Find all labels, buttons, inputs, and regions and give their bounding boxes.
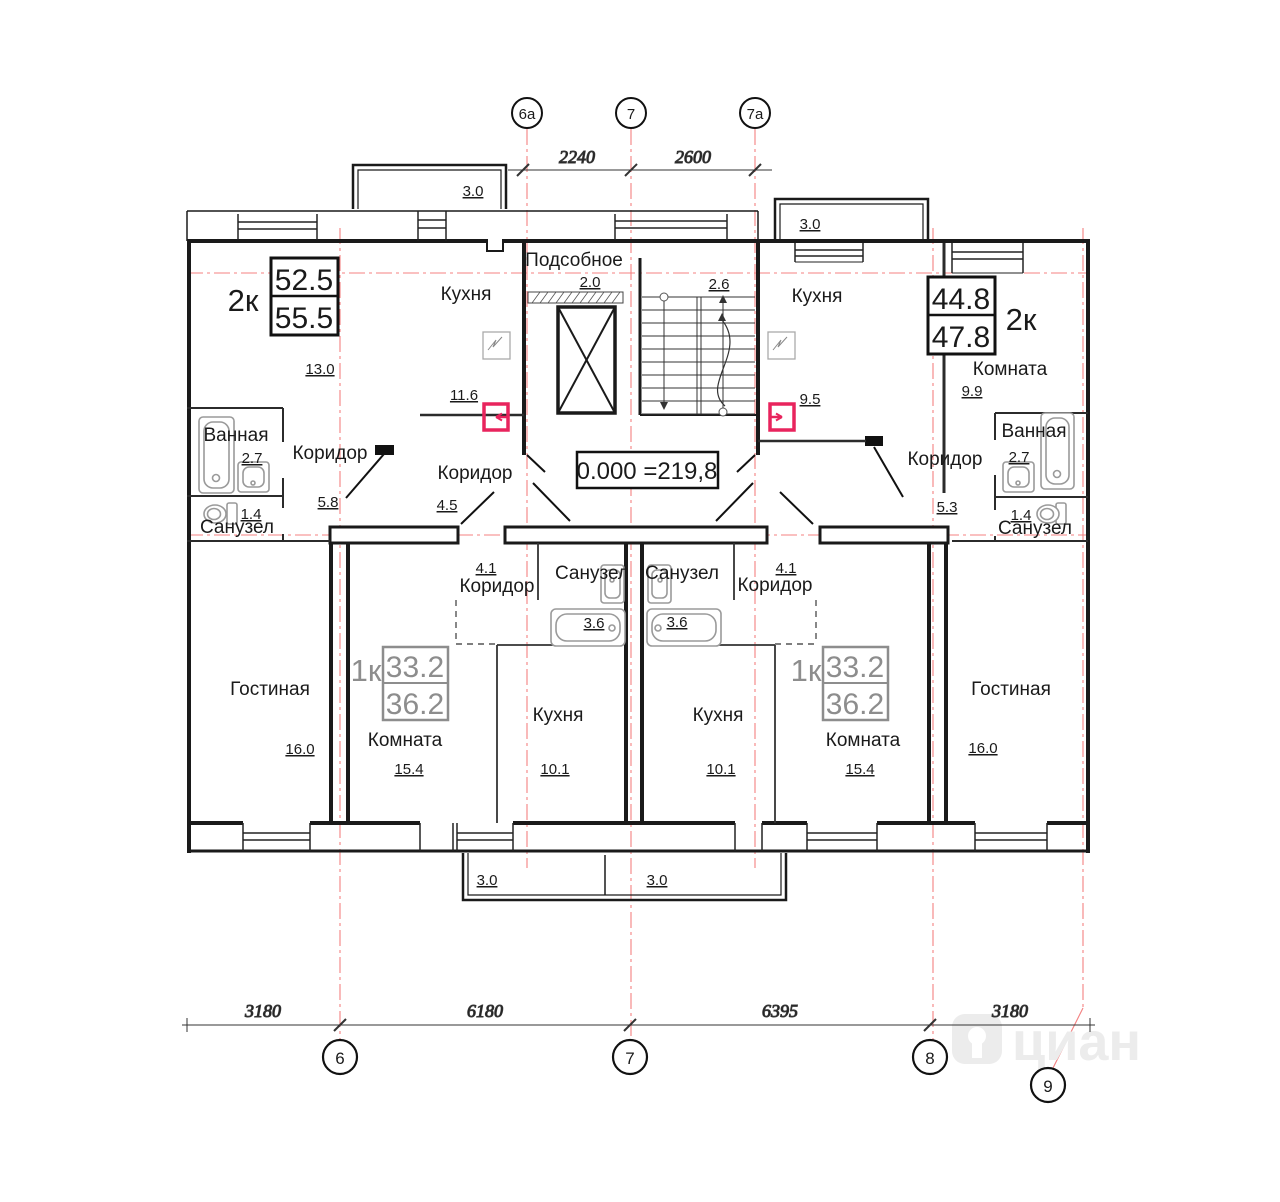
window-bottom-living-right <box>975 823 1047 851</box>
area-living-r2k: 16.0 <box>968 740 997 757</box>
label-kitchen-r1k: Кухня <box>693 705 744 726</box>
area-room-r1k: 15.4 <box>845 761 874 778</box>
wall-slab-left <box>330 527 458 543</box>
apt-area1-left2k: 52.5 <box>275 264 333 297</box>
label-kitchen-r2k: Кухня <box>792 286 843 307</box>
staircase <box>640 258 758 416</box>
dim-bottom-2: 6180 <box>467 1001 503 1021</box>
apt-area2-right1k: 36.2 <box>826 688 884 721</box>
door-stub-hall-right <box>866 437 882 445</box>
label-kitchen-l2k: Кухня <box>441 284 492 305</box>
apartment-card-right1k: 1к 33.2 36.2 <box>791 647 888 721</box>
watermark-text: циан <box>1012 1012 1141 1072</box>
apartment-card-right2k: 2к 44.8 47.8 <box>928 277 1037 354</box>
label-room-l1k: Комната <box>368 730 443 751</box>
electric-panel-left <box>483 332 510 359</box>
floor-plan-page: циан <box>0 0 1280 1202</box>
watermark-logo-pin-tail <box>972 1040 982 1058</box>
balcony-door-right <box>735 823 762 851</box>
apt-area1-right2k: 44.8 <box>932 283 990 316</box>
electric-panel-right <box>768 332 795 359</box>
area-wc-r1k: 3.6 <box>667 614 688 631</box>
area-kitchen-l1k: 10.1 <box>540 761 569 778</box>
label-bath-l2k: Ванная <box>203 425 268 446</box>
axis-label-7: 7 <box>625 1049 634 1068</box>
entry-door-right <box>770 404 794 430</box>
axis-bubble-6a: 6а <box>512 98 542 128</box>
lobby-stub-right <box>737 455 755 472</box>
area-living-l2k: 16.0 <box>285 741 314 758</box>
elevation-value: 0.000 =219,8 <box>577 458 718 485</box>
axis-bubble-7a: 7а <box>740 98 770 128</box>
area-bath-l2k: 2.7 <box>242 450 263 467</box>
axis-label-8: 8 <box>925 1049 934 1068</box>
area-kitchen-l2k: 11.6 <box>450 387 478 404</box>
elevator-shaft <box>558 307 615 413</box>
area-hall1-l2k: 5.8 <box>318 494 339 511</box>
area-podsobnoe: 2.0 <box>580 274 601 291</box>
balcony-door-left <box>420 823 453 851</box>
area-wc-l1k: 3.6 <box>584 615 605 632</box>
apartment-card-left2k: 2к 52.5 55.5 <box>228 258 338 335</box>
area-balcony-top-right: 3.0 <box>800 216 821 233</box>
watermark: циан <box>952 1012 1141 1072</box>
window-top-bay <box>418 211 446 241</box>
area-bath-r2k: 2.7 <box>1009 449 1030 466</box>
apt-type-right2k: 2к <box>1006 302 1037 337</box>
label-wc-r1k: Санузел <box>645 563 719 584</box>
apt-area2-left1k: 36.2 <box>386 688 444 721</box>
label-hall-r2k: Коридор <box>907 449 982 470</box>
label-hall2-l2k: Коридор <box>437 463 512 484</box>
door-leaf-apt-left1k <box>461 492 494 524</box>
axis-label-9: 9 <box>1043 1077 1052 1096</box>
label-hall-l1k: Коридор <box>459 576 534 597</box>
axis-label-6: 6 <box>335 1049 344 1068</box>
window-right-kitchen <box>795 243 863 262</box>
apt-area2-left2k: 55.5 <box>275 302 333 335</box>
area-hall2-l2k: 4.5 <box>437 497 458 514</box>
door-stub-hall-left <box>376 446 393 454</box>
axis-bubble-6: 6 <box>323 1040 357 1074</box>
apt-area1-left1k: 33.2 <box>386 651 444 684</box>
area-balcony-bottom-left: 3.0 <box>477 872 498 889</box>
label-hall-r1k: Коридор <box>737 575 812 596</box>
balcony-top-right <box>775 199 928 241</box>
apartment-card-left1k: 1к 33.2 36.2 <box>351 647 448 721</box>
elevation-marker: 0.000 =219,8 <box>577 452 718 488</box>
axis-bubble-7: 7 <box>613 1040 647 1074</box>
balcony-bottom <box>463 853 786 900</box>
entry-door-left <box>484 404 508 430</box>
axis-bubble-7top: 7 <box>616 98 646 128</box>
wall-slab-right <box>820 527 948 543</box>
axis-bubble-8: 8 <box>913 1040 947 1074</box>
lobby-walls <box>330 527 948 543</box>
dim-bottom-1: 3180 <box>244 1001 281 1021</box>
label-hall1-l2k: Коридор <box>292 443 367 464</box>
dim-top-2: 2600 <box>675 147 711 167</box>
axis-label-6a: 6а <box>519 106 536 123</box>
dimension-top: 2240 2600 <box>508 147 772 176</box>
area-balcony-bottom-right: 3.0 <box>647 872 668 889</box>
area-kitchen-r2k: 9.5 <box>800 391 821 408</box>
dim-bottom-4: 3180 <box>991 1001 1028 1021</box>
label-room-r1k: Комната <box>826 730 901 751</box>
area-room-l2k: 13.0 <box>305 361 334 378</box>
window-stairwell <box>615 214 727 240</box>
lobby-stub-left <box>527 455 545 472</box>
label-podsobnoe: Подсобное <box>525 250 623 271</box>
apt-type-left1k: 1к <box>351 653 382 688</box>
area-kitchen-r1k: 10.1 <box>706 761 735 778</box>
door-leaf-apt-right1k <box>780 492 813 524</box>
lobby-door-right <box>716 483 753 521</box>
window-top-left <box>238 214 317 240</box>
label-living-l2k: Гостиная <box>230 679 310 700</box>
area-room-l1k: 15.4 <box>394 761 423 778</box>
window-bottom-living-left <box>243 823 310 851</box>
area-room-r2k: 9.9 <box>962 383 983 400</box>
label-kitchen-l1k: Кухня <box>533 705 584 726</box>
podsobnoe-hatch <box>528 292 623 303</box>
window-right-room <box>952 243 1023 273</box>
label-wc-r2k: Санузел <box>998 518 1072 539</box>
stairs-walk-line <box>718 320 730 406</box>
axis-label-7top: 7 <box>627 106 635 123</box>
axis-bubbles: 6а 7 7а 6 7 8 9 <box>323 98 1065 1102</box>
dim-top-1: 2240 <box>559 147 595 167</box>
area-stairs: 2.6 <box>709 276 730 293</box>
lobby-door-left <box>533 483 570 521</box>
axis-bubble-9: 9 <box>1031 1068 1065 1102</box>
label-bath-r2k: Ванная <box>1001 421 1066 442</box>
label-room-r2k: Комната <box>973 359 1048 380</box>
apt-area2-right2k: 47.8 <box>932 321 990 354</box>
window-bottom-room-right <box>807 823 877 851</box>
area-hall-r2k: 5.3 <box>937 499 958 516</box>
floor-plan-drawing: циан <box>0 0 1280 1202</box>
label-wc-l1k: Санузел <box>555 563 629 584</box>
door-leaf-hall-right <box>874 447 903 497</box>
apt-area1-right1k: 33.2 <box>826 651 884 684</box>
entrance-notch <box>487 239 503 251</box>
dim-bottom-3: 6395 <box>762 1001 798 1021</box>
apt-type-right1k: 1к <box>791 653 822 688</box>
label-living-r2k: Гостиная <box>971 679 1051 700</box>
label-wc-l2k: Санузел <box>200 517 274 538</box>
window-bottom-room-left <box>457 823 513 851</box>
apt-type-left2k: 2к <box>228 283 259 318</box>
balcony-bottom-inner <box>468 853 781 895</box>
sink-right <box>1003 462 1034 492</box>
area-balcony-top-left: 3.0 <box>463 183 484 200</box>
wall-slab-center <box>505 527 767 543</box>
axis-label-7a: 7а <box>747 106 764 123</box>
area-hall-l1k: 4.1 <box>476 560 497 577</box>
